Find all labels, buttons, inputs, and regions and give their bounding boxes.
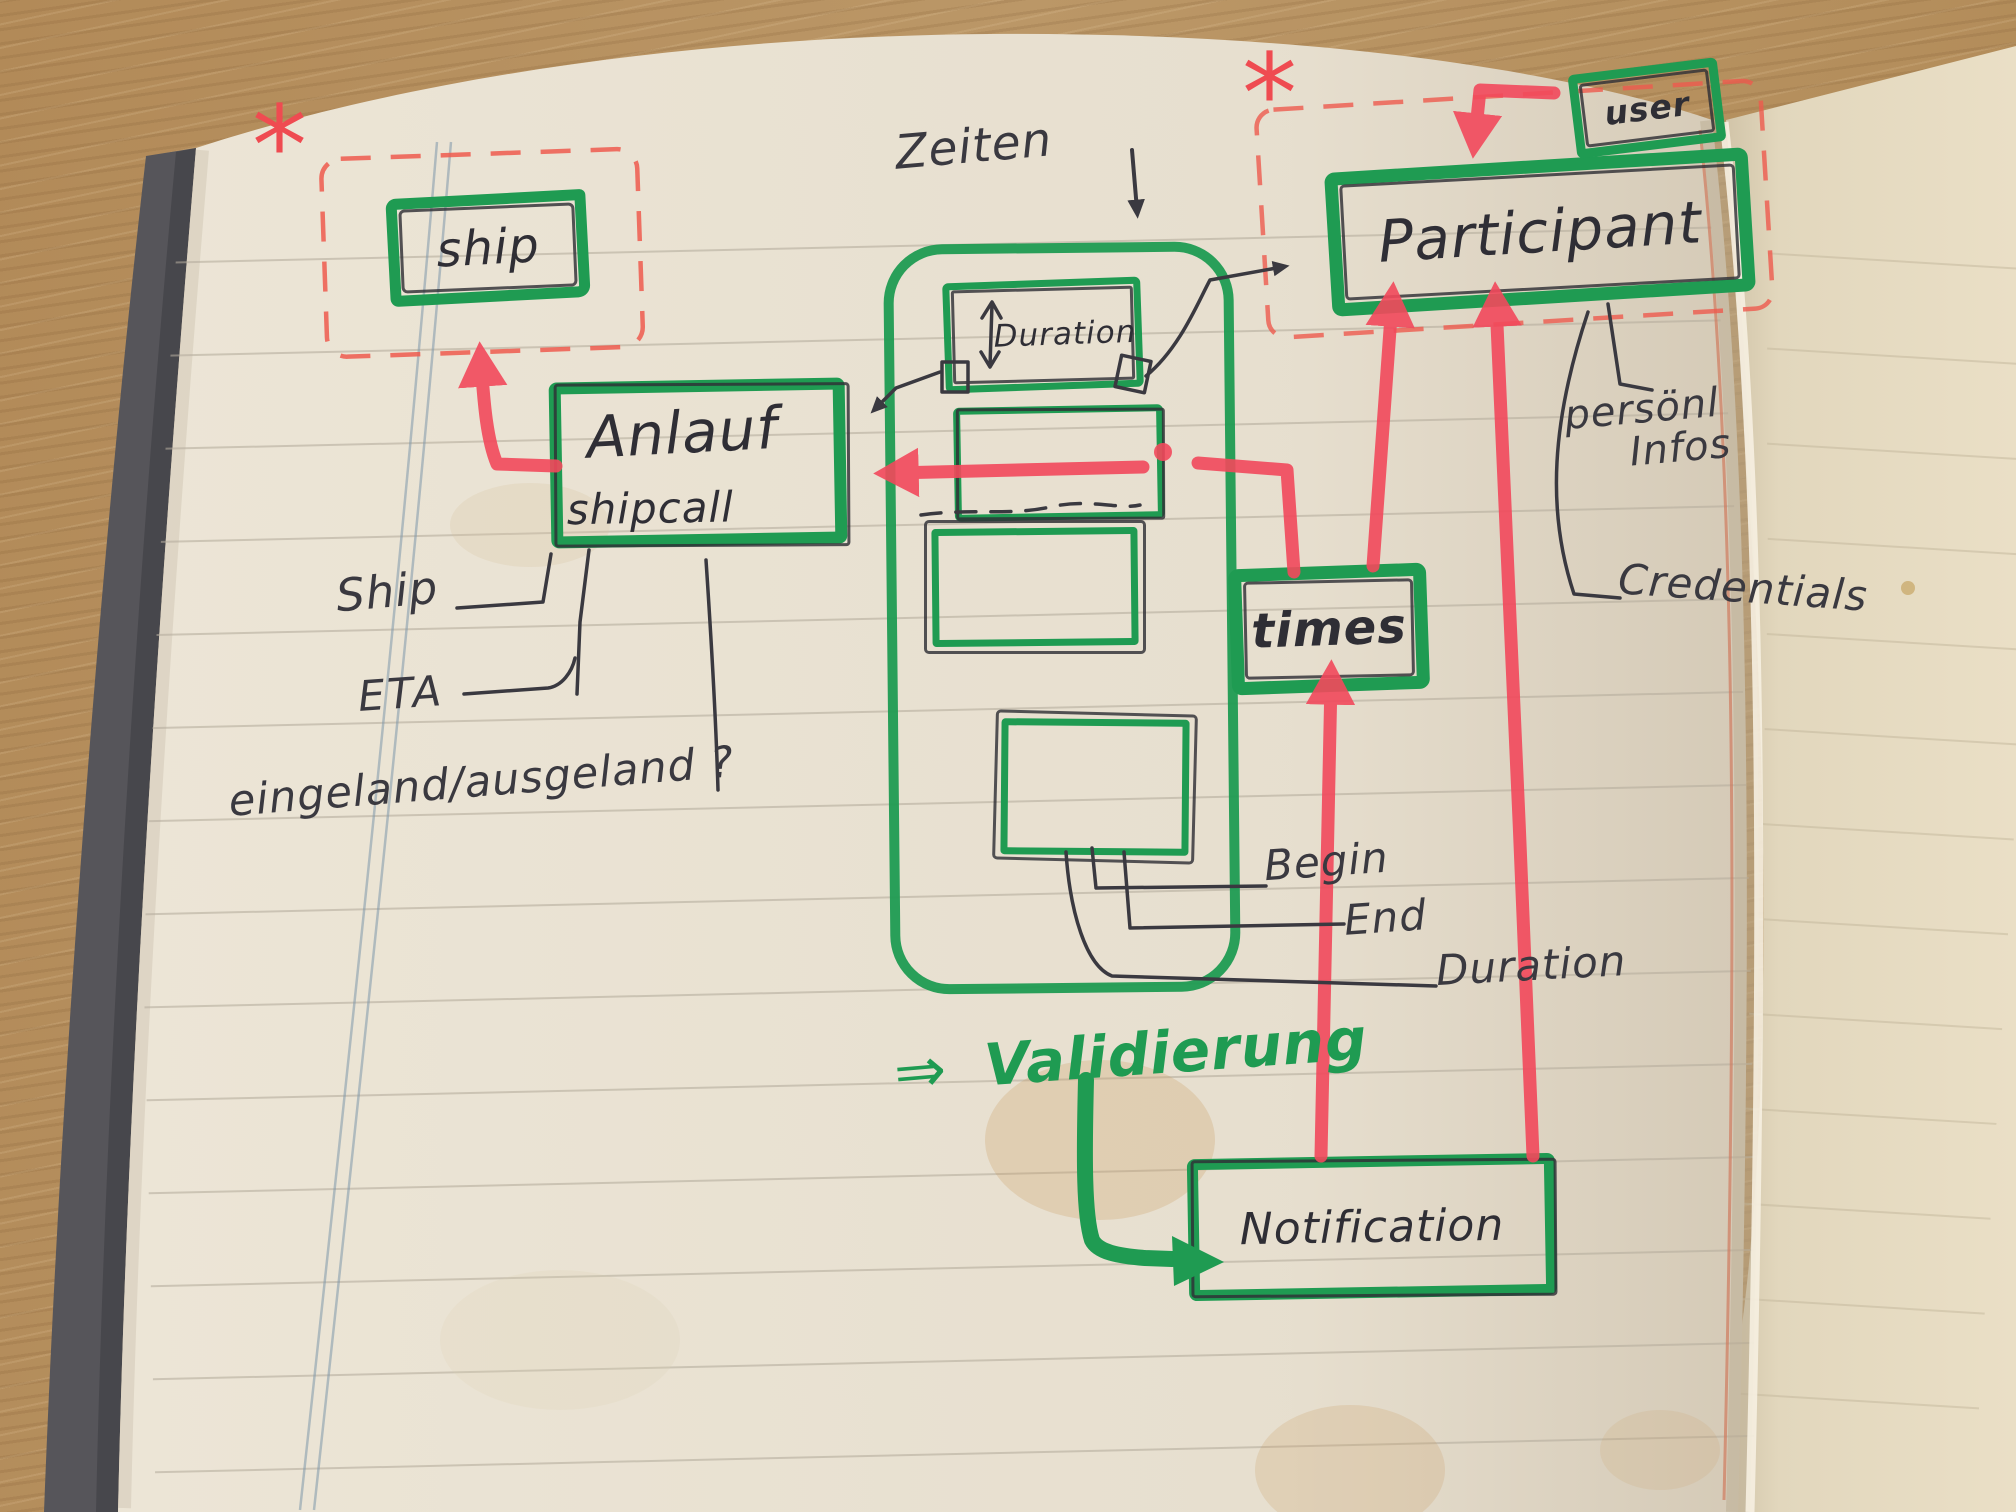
validierung-arrow-icon: ⇒ [891,1036,949,1105]
entity-box-ship: ship [385,189,590,307]
end-annotation: End [1343,893,1429,943]
stack-box-bottom-green [1000,718,1189,856]
stack-box-middle [924,520,1146,654]
stack-box-top [953,404,1165,522]
entity-box-participant: Participant [1324,147,1756,317]
persoenl-infos-annotation: persönl Infos [1563,381,1733,479]
right-page-speck [1901,581,1915,595]
stack-box-bottom [992,709,1198,864]
participant-asterisk: * [1242,56,1297,133]
notebook-photo: ship Anlauf shipcall Duration Participan… [0,0,2016,1512]
notification-label: Notification [1198,1164,1546,1290]
stack-box-middle-green [931,527,1138,647]
times-label: times [1241,576,1416,682]
participant-label: Participant [1338,161,1742,303]
eta-annotation: ETA [357,669,446,719]
ship-asterisk: * [252,108,307,185]
entity-box-times: times [1228,563,1430,696]
entity-box-anlauf: Anlauf shipcall [549,377,848,548]
duration-attr-annotation: Duration [1435,939,1627,993]
begin-annotation: Begin [1263,836,1390,889]
ship-attr-annotation: Ship [334,564,440,620]
stack-box-top-ink [956,408,1165,521]
entity-box-duration: Duration [942,277,1144,394]
anlauf-sublabel: shipcall [561,390,835,537]
ship-label: ship [397,200,579,295]
user-label: user [1577,67,1716,149]
duration-label: Duration [949,284,1136,386]
zeiten-annotation: Zeiten [893,115,1054,178]
entity-box-notification: Notification [1187,1153,1557,1301]
